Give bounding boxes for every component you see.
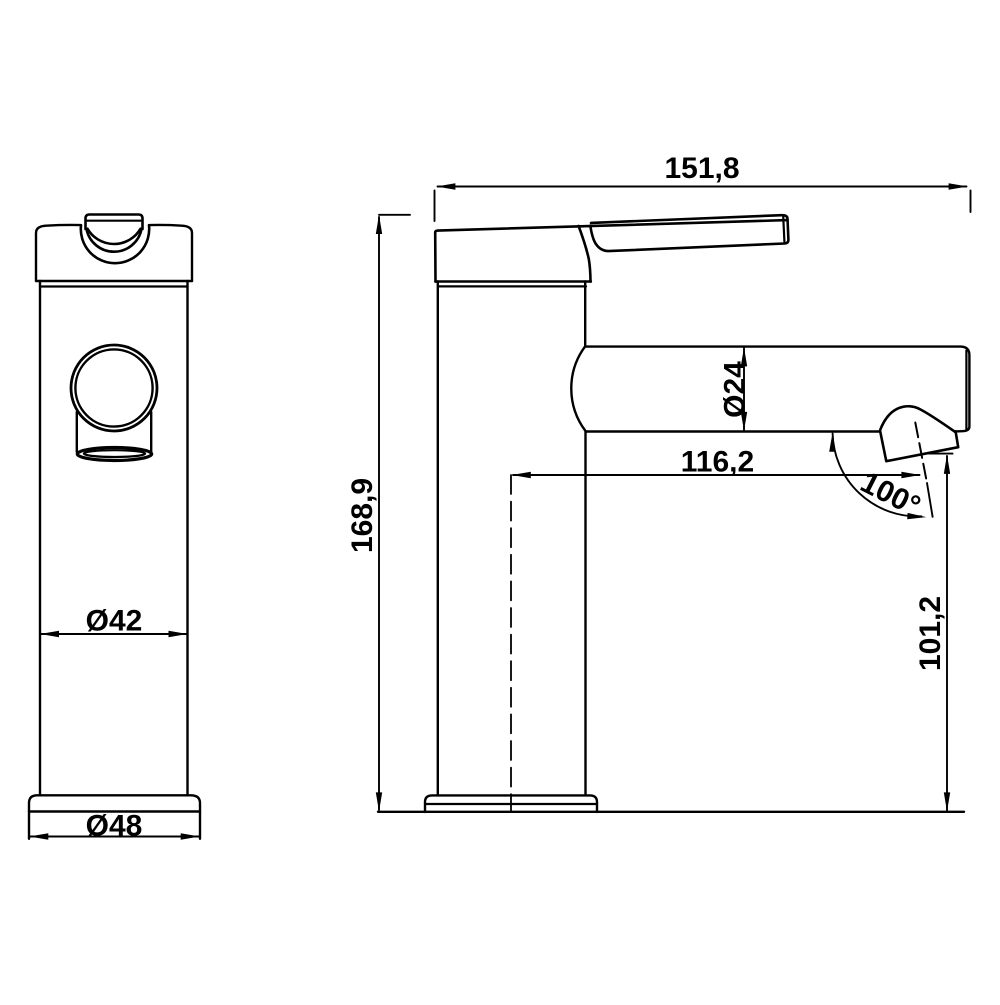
svg-text:101,2: 101,2 <box>914 596 947 671</box>
svg-text:151,8: 151,8 <box>664 152 739 185</box>
svg-text:Ø42: Ø42 <box>86 605 143 638</box>
svg-text:Ø24: Ø24 <box>719 361 752 418</box>
svg-text:168,9: 168,9 <box>346 478 379 553</box>
svg-text:Ø48: Ø48 <box>86 810 143 843</box>
svg-text:116,2: 116,2 <box>681 446 754 479</box>
